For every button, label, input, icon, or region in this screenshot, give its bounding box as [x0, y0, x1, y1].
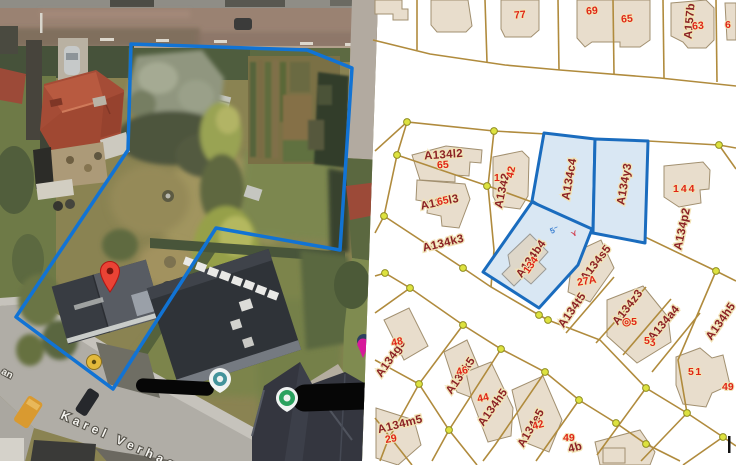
svg-text:5ʒ: 5ʒ: [644, 335, 656, 347]
svg-text:51: 51: [688, 366, 703, 378]
svg-text:65: 65: [621, 13, 634, 26]
svg-text:◎5: ◎5: [622, 316, 637, 328]
svg-text:65: 65: [437, 159, 450, 172]
svg-text:49: 49: [722, 381, 734, 393]
svg-text:63: 63: [692, 20, 705, 33]
svg-text:77: 77: [514, 9, 527, 22]
svg-text:69: 69: [586, 5, 599, 18]
svg-text:1: 1: [494, 172, 500, 184]
svg-text:144: 144: [673, 183, 697, 195]
svg-text:29: 29: [384, 432, 398, 446]
svg-text:6: 6: [725, 19, 731, 31]
